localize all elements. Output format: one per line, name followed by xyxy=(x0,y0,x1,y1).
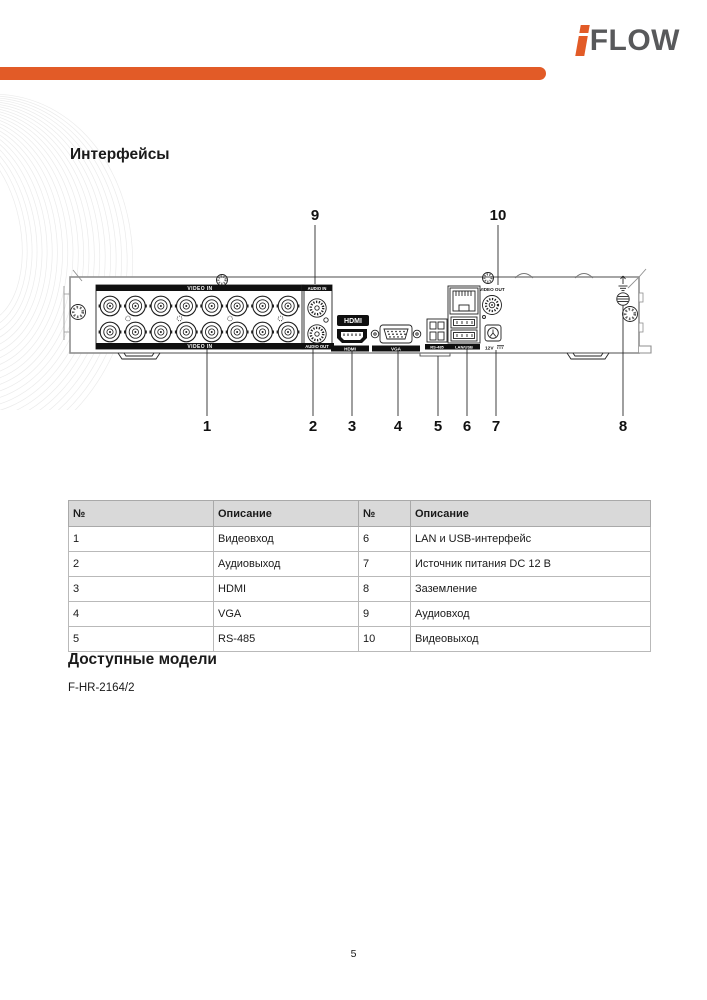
vga-label: VGA xyxy=(391,346,402,351)
power-label: 12V xyxy=(485,346,494,352)
table-cell: 4 xyxy=(69,602,214,627)
video-out-label: VIDEO OUT xyxy=(479,287,504,292)
table-cell: HDMI xyxy=(214,577,359,602)
table-cell: Источник питания DC 12 В xyxy=(411,552,651,577)
header-cell: № xyxy=(359,501,411,527)
callout-6: 6 xyxy=(463,418,471,435)
model-name: F-HR-2164/2 xyxy=(68,682,134,694)
audio-in-label: AUDIO IN xyxy=(308,286,327,291)
table-cell: 9 xyxy=(359,602,411,627)
header-cell: Описание xyxy=(214,501,359,527)
table-row: 5 RS-485 10 Видеовыход xyxy=(69,627,651,652)
header-cell: Описание xyxy=(411,501,651,527)
table-cell: 2 xyxy=(69,552,214,577)
table-row: 1 Видеовход 6 LAN и USB-интерфейс xyxy=(69,527,651,552)
table-cell: 8 xyxy=(359,577,411,602)
table-cell: RS-485 xyxy=(214,627,359,652)
table-cell: Видеовыход xyxy=(411,627,651,652)
table-row: 4 VGA 9 Аудиовход xyxy=(69,602,651,627)
callout-3: 3 xyxy=(348,418,356,435)
section-title-models: Доступные модели xyxy=(68,651,217,669)
accent-bar xyxy=(0,67,546,80)
page-number: 5 xyxy=(0,948,707,960)
table-cell: Аудиовыход xyxy=(214,552,359,577)
header-cell: № xyxy=(69,501,214,527)
table-cell: Видеовход xyxy=(214,527,359,552)
callout-9: 9 xyxy=(311,207,319,224)
document-page: FLOW Интерфейсы xyxy=(0,0,707,1000)
table-cell: 3 xyxy=(69,577,214,602)
lan-usb-label: LAN/USB xyxy=(455,344,473,349)
callout-10: 10 xyxy=(490,207,507,224)
table-cell: 6 xyxy=(359,527,411,552)
table-cell: Аудиовход xyxy=(411,602,651,627)
table-header-row: № Описание № Описание xyxy=(69,501,651,527)
table-cell: VGA xyxy=(214,602,359,627)
hdmi-logo: HDMI xyxy=(344,318,362,325)
callout-7: 7 xyxy=(492,418,500,435)
table-row: 3 HDMI 8 Заземление xyxy=(69,577,651,602)
rear-panel-diagram: VIDEO IN VIDEO IN AUDIO IN AUDIO OUT xyxy=(60,198,660,448)
table-cell: 5 xyxy=(69,627,214,652)
table-row: 2 Аудиовыход 7 Источник питания DC 12 В xyxy=(69,552,651,577)
callout-4: 4 xyxy=(394,418,403,435)
logo-text: FLOW xyxy=(590,26,680,56)
table-cell: 10 xyxy=(359,627,411,652)
callout-1: 1 xyxy=(203,418,211,435)
brand-logo: FLOW xyxy=(578,25,680,56)
callout-5: 5 xyxy=(434,418,442,435)
video-in-bottom-label: VIDEO IN xyxy=(187,344,212,350)
table-cell: 7 xyxy=(359,552,411,577)
table-cell: Заземление xyxy=(411,577,651,602)
callout-2: 2 xyxy=(309,418,317,435)
audio-out-label: AUDIO OUT xyxy=(305,344,329,349)
section-title-interfaces: Интерфейсы xyxy=(70,146,170,164)
logo-i-icon xyxy=(575,25,589,56)
video-in-top-label: VIDEO IN xyxy=(187,286,212,292)
rs485-label: RS-485 xyxy=(430,344,444,349)
interface-table: № Описание № Описание 1 Видеовход 6 LAN … xyxy=(68,500,651,652)
table-cell: LAN и USB-интерфейс xyxy=(411,527,651,552)
callout-8: 8 xyxy=(619,418,627,435)
hdmi-port-label: HDMI xyxy=(344,346,356,351)
table-cell: 1 xyxy=(69,527,214,552)
